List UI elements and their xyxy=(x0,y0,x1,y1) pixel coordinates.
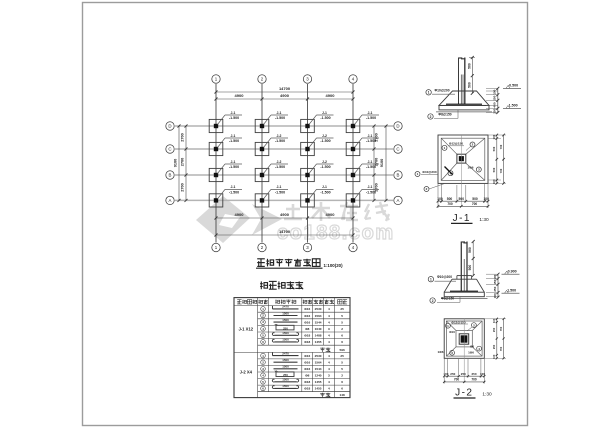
svg-text:-1.500: -1.500 xyxy=(366,139,376,143)
svg-text:4900: 4900 xyxy=(326,93,336,98)
svg-text:700: 700 xyxy=(447,202,453,206)
svg-text:J-1: J-1 xyxy=(231,134,236,138)
svg-text:J-2: J-2 xyxy=(277,160,282,164)
svg-text:2470: 2470 xyxy=(282,305,289,309)
svg-text:1: 1 xyxy=(428,91,430,95)
svg-text:1Φ6: 1Φ6 xyxy=(438,350,444,354)
svg-text:Φ10@200: Φ10@200 xyxy=(434,88,449,92)
svg-text:1: 1 xyxy=(430,278,432,282)
svg-text:1500: 1500 xyxy=(282,311,289,315)
svg-text:4: 4 xyxy=(328,380,330,384)
svg-text:-1.500: -1.500 xyxy=(229,190,239,194)
svg-text:-0.500: -0.500 xyxy=(508,84,518,88)
svg-text:100: 100 xyxy=(493,293,497,298)
svg-text:-1.500: -1.500 xyxy=(275,116,285,120)
svg-text:560: 560 xyxy=(468,247,472,253)
svg-text:1544: 1544 xyxy=(315,367,322,371)
svg-text:1:30: 1:30 xyxy=(479,217,489,223)
svg-text:Φ16: Φ16 xyxy=(304,367,310,371)
svg-text:1500: 1500 xyxy=(282,378,289,382)
svg-text:700: 700 xyxy=(499,144,503,149)
svg-text:J-1: J-1 xyxy=(368,160,373,164)
svg-text:700: 700 xyxy=(454,378,460,382)
svg-text:-1.500: -1.500 xyxy=(320,165,330,169)
svg-text:1488: 1488 xyxy=(315,334,322,338)
svg-text:250: 250 xyxy=(461,372,466,376)
svg-text:9100: 9100 xyxy=(380,159,384,167)
svg-text:500: 500 xyxy=(447,197,453,201)
svg-text:5: 5 xyxy=(341,367,343,371)
svg-text:J-2: J-2 xyxy=(322,160,327,164)
svg-text:J-1: J-1 xyxy=(368,134,373,138)
svg-text:1500: 1500 xyxy=(282,318,289,322)
svg-text:-1.500: -1.500 xyxy=(366,190,376,194)
svg-text:-1.500: -1.500 xyxy=(320,139,330,143)
svg-text:350: 350 xyxy=(493,286,497,291)
svg-text:Φ10@200: Φ10@200 xyxy=(437,275,452,279)
svg-text:-1.500: -1.500 xyxy=(229,116,239,120)
svg-text:J-1: J-1 xyxy=(231,160,236,164)
svg-text:500: 500 xyxy=(459,197,465,201)
svg-text:2: 2 xyxy=(430,115,432,119)
svg-text:2700: 2700 xyxy=(181,133,185,141)
svg-text:-1.500: -1.500 xyxy=(275,165,285,169)
svg-text:500: 500 xyxy=(467,82,471,88)
svg-text:100: 100 xyxy=(493,274,497,279)
svg-text:J-1: J-1 xyxy=(368,111,373,115)
svg-text:25: 25 xyxy=(340,307,344,311)
svg-text:250: 250 xyxy=(492,344,496,349)
svg-text:250: 250 xyxy=(283,326,288,330)
svg-text:2470: 2470 xyxy=(282,351,289,355)
svg-text:4900: 4900 xyxy=(280,212,290,217)
svg-text:Φ6: Φ6 xyxy=(470,344,475,348)
svg-text:1455: 1455 xyxy=(315,387,322,391)
svg-text:C: C xyxy=(168,147,171,152)
svg-text:6: 6 xyxy=(341,340,343,344)
svg-text:700: 700 xyxy=(472,202,478,206)
svg-text:J-1 X12: J-1 X12 xyxy=(238,327,253,332)
svg-text:4: 4 xyxy=(328,307,330,311)
svg-text:100: 100 xyxy=(437,197,443,201)
svg-text:2: 2 xyxy=(432,299,434,303)
svg-text:1040: 1040 xyxy=(315,327,322,331)
svg-text:B: B xyxy=(397,173,400,178)
svg-text:C: C xyxy=(396,147,399,152)
svg-text:1500: 1500 xyxy=(282,358,289,362)
svg-text:5: 5 xyxy=(341,320,343,324)
svg-text:250: 250 xyxy=(283,373,288,377)
svg-text:4900: 4900 xyxy=(235,93,245,98)
svg-text:4: 4 xyxy=(328,361,330,365)
svg-text:J-2 X4: J-2 X4 xyxy=(240,370,253,375)
svg-text:148: 148 xyxy=(340,393,345,397)
svg-text:Φ18: Φ18 xyxy=(304,340,310,344)
svg-text:250: 250 xyxy=(492,327,496,332)
svg-text:250: 250 xyxy=(493,108,497,113)
svg-text:150: 150 xyxy=(493,279,497,284)
svg-text:Φ18: Φ18 xyxy=(304,387,310,391)
svg-text:1500: 1500 xyxy=(282,365,289,369)
svg-text:400: 400 xyxy=(493,102,497,107)
svg-text:100: 100 xyxy=(492,134,496,139)
svg-text:-1.500: -1.500 xyxy=(275,139,285,143)
svg-text:700: 700 xyxy=(499,346,503,351)
svg-text:2700: 2700 xyxy=(181,183,185,191)
svg-text:Φ10: Φ10 xyxy=(449,330,455,334)
svg-text:1:30: 1:30 xyxy=(482,392,492,398)
svg-text:560: 560 xyxy=(467,63,471,69)
svg-text:2700: 2700 xyxy=(181,158,185,166)
svg-text:co188.com: co188.com xyxy=(277,222,395,244)
svg-text:A: A xyxy=(397,198,400,203)
svg-text:4900: 4900 xyxy=(280,93,290,98)
svg-text:Φ16: Φ16 xyxy=(304,314,310,318)
svg-text:4: 4 xyxy=(328,314,330,318)
svg-text:1544: 1544 xyxy=(315,320,322,324)
svg-text:100: 100 xyxy=(493,89,497,94)
svg-text:J-1: J-1 xyxy=(277,185,282,189)
svg-text:1455: 1455 xyxy=(315,380,322,384)
svg-text:250: 250 xyxy=(471,372,476,376)
svg-text:-1.500: -1.500 xyxy=(366,165,376,169)
svg-text:Φ16: Φ16 xyxy=(304,354,310,358)
svg-text:2530: 2530 xyxy=(315,307,322,311)
svg-text:100: 100 xyxy=(492,354,496,359)
svg-text:-0.900: -0.900 xyxy=(506,269,516,273)
svg-text:1455: 1455 xyxy=(315,340,322,344)
svg-text:-1.500: -1.500 xyxy=(366,116,376,120)
svg-text:2530: 2530 xyxy=(315,354,322,358)
svg-text:4: 4 xyxy=(328,320,330,324)
svg-text:5: 5 xyxy=(341,314,343,318)
svg-text:700: 700 xyxy=(499,326,503,331)
svg-text:14700: 14700 xyxy=(279,86,291,91)
svg-text:Φ16: Φ16 xyxy=(304,307,310,311)
svg-text:1564: 1564 xyxy=(315,361,322,365)
svg-text:-1.500: -1.500 xyxy=(275,190,285,194)
svg-text:100: 100 xyxy=(480,372,485,376)
svg-text:1500: 1500 xyxy=(282,384,289,388)
svg-text:Φ18: Φ18 xyxy=(304,380,310,384)
svg-text:6: 6 xyxy=(341,380,343,384)
svg-text:Φ18: Φ18 xyxy=(304,334,310,338)
svg-text:1240: 1240 xyxy=(315,374,322,378)
svg-text:25: 25 xyxy=(340,354,344,358)
svg-text:Φ8: Φ8 xyxy=(305,374,310,378)
svg-text:D: D xyxy=(168,124,171,129)
svg-text:J-1: J-1 xyxy=(231,185,236,189)
svg-text:D: D xyxy=(396,124,399,129)
svg-text:100: 100 xyxy=(492,179,496,184)
svg-text:14700: 14700 xyxy=(279,229,291,234)
svg-text:1Φ6: 1Φ6 xyxy=(468,351,474,355)
svg-text:J-1: J-1 xyxy=(231,111,236,115)
svg-text:J-2: J-2 xyxy=(322,134,327,138)
svg-text:4: 4 xyxy=(328,340,330,344)
svg-text:1Φ6: 1Φ6 xyxy=(468,165,474,169)
svg-text:1564: 1564 xyxy=(315,314,322,318)
svg-text:5: 5 xyxy=(341,361,343,365)
svg-text:9100: 9100 xyxy=(174,159,178,167)
svg-text:500: 500 xyxy=(492,167,496,172)
svg-text:4: 4 xyxy=(328,387,330,391)
svg-text:J-1: J-1 xyxy=(453,213,471,224)
svg-text:2: 2 xyxy=(341,374,343,378)
svg-text:500: 500 xyxy=(492,146,496,151)
svg-text:J-1: J-1 xyxy=(277,111,282,115)
svg-text:4: 4 xyxy=(328,354,330,358)
svg-text:700: 700 xyxy=(471,378,477,382)
svg-text:3: 3 xyxy=(328,327,330,331)
svg-text:Φ16: Φ16 xyxy=(304,361,310,365)
svg-text:4: 4 xyxy=(328,334,330,338)
svg-text:J-1: J-1 xyxy=(322,111,327,115)
svg-text:100: 100 xyxy=(483,197,489,201)
svg-text:J-2: J-2 xyxy=(277,134,282,138)
svg-text:4900: 4900 xyxy=(235,212,245,217)
svg-text:Φ8@150: Φ8@150 xyxy=(441,297,454,301)
svg-text:Φ8: Φ8 xyxy=(305,327,310,331)
svg-text:4: 4 xyxy=(328,367,330,371)
svg-text:100: 100 xyxy=(492,318,496,323)
svg-text:1500: 1500 xyxy=(282,338,289,342)
svg-text:1:100(20): 1:100(20) xyxy=(324,263,344,268)
svg-text:A: A xyxy=(169,198,172,203)
svg-text:-1.500: -1.500 xyxy=(320,116,330,120)
svg-text:6: 6 xyxy=(341,387,343,391)
svg-text:500: 500 xyxy=(468,265,472,271)
svg-text:-1.500: -1.500 xyxy=(229,165,239,169)
svg-text:596: 596 xyxy=(340,348,345,352)
svg-text:J-1: J-1 xyxy=(322,185,327,189)
svg-text:2: 2 xyxy=(341,327,343,331)
svg-text:250: 250 xyxy=(450,372,455,376)
svg-text:Φ16: Φ16 xyxy=(304,320,310,324)
svg-text:B: B xyxy=(169,173,172,178)
svg-text:100: 100 xyxy=(443,372,448,376)
svg-text:-1.500: -1.500 xyxy=(229,139,239,143)
svg-text:1500: 1500 xyxy=(282,331,289,335)
svg-text:4900: 4900 xyxy=(326,212,336,217)
svg-text:6: 6 xyxy=(341,334,343,338)
svg-text:Φ10@200: Φ10@200 xyxy=(422,170,436,174)
svg-text:J-1: J-1 xyxy=(368,185,373,189)
svg-text:700: 700 xyxy=(499,168,503,173)
svg-text:-1.500: -1.500 xyxy=(320,190,330,194)
svg-text:250: 250 xyxy=(493,95,497,100)
svg-text:3: 3 xyxy=(328,374,330,378)
svg-text:500: 500 xyxy=(472,197,478,201)
svg-text:Φ8@150: Φ8@150 xyxy=(438,113,451,117)
svg-text:J-2: J-2 xyxy=(455,388,473,399)
